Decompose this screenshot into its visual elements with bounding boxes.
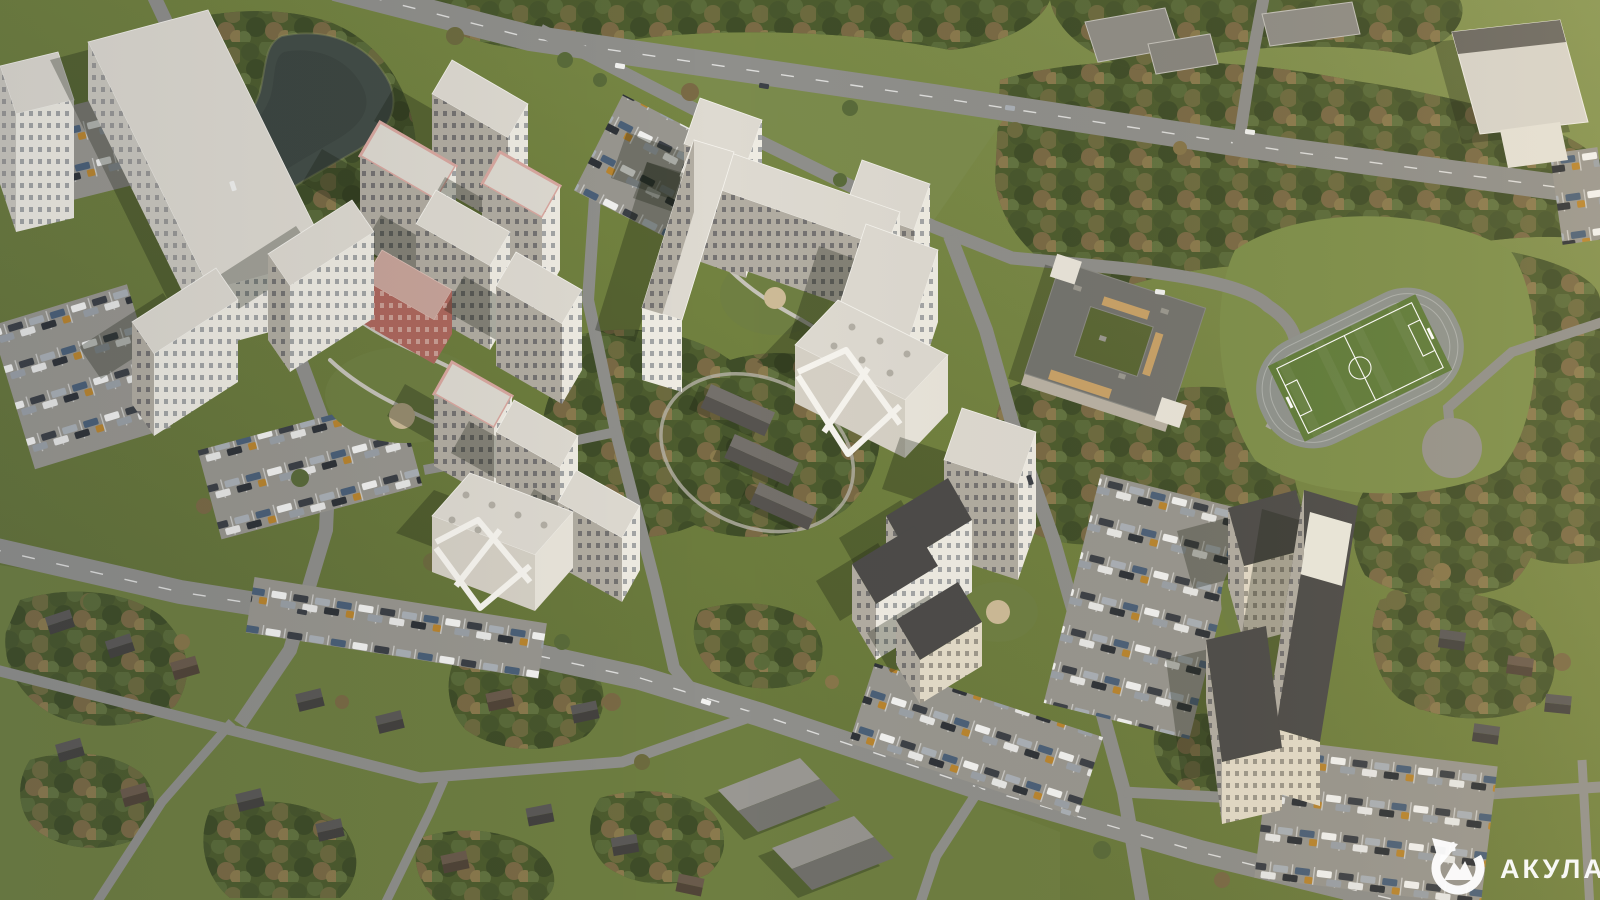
house <box>1472 723 1500 744</box>
annex <box>1500 122 1568 168</box>
playground <box>764 287 786 309</box>
facade <box>642 308 682 392</box>
house <box>1438 629 1466 650</box>
watermark-text: АКУЛА <box>1500 854 1600 884</box>
aerial-render: АКУЛА <box>0 0 1600 900</box>
playground <box>986 600 1010 624</box>
facade <box>16 100 74 232</box>
round-plaza <box>1422 418 1482 478</box>
house <box>1506 655 1534 676</box>
house <box>1544 694 1572 715</box>
